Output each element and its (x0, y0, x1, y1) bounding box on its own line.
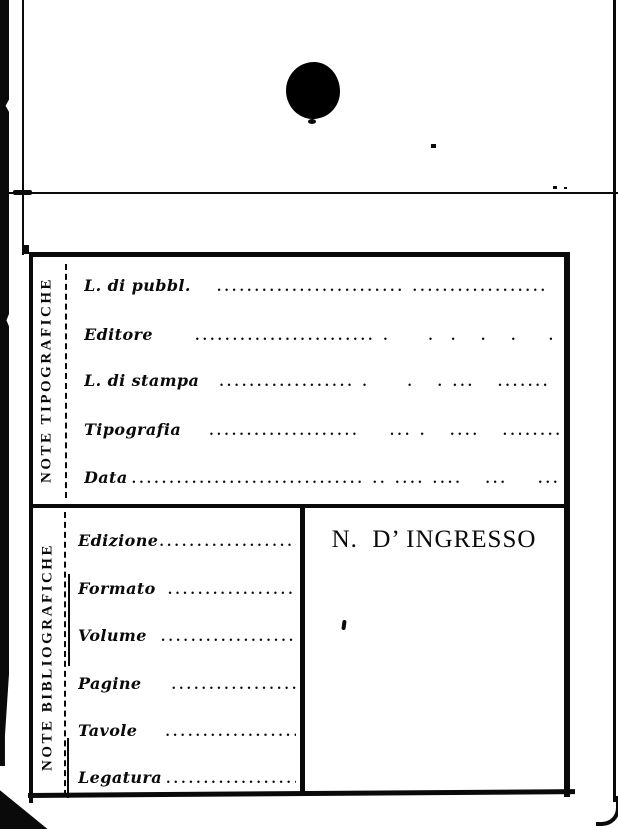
dotted-leader: ....................... (147, 630, 296, 645)
field-row-tavole: Tavole .................... (78, 721, 296, 743)
dotted-leader: .................... (141, 678, 296, 693)
scan-edge-line-right (613, 0, 616, 802)
scan-speck (431, 144, 436, 148)
scan-speck (553, 186, 557, 189)
dotted-leader: ........................ . . . . . . . .… (153, 329, 562, 344)
dotted-leader: ...................... (162, 772, 296, 787)
hole-punch-dot (286, 62, 340, 119)
scanned-catalog-card-page: NOTE TIPOGRAFICHE NOTE BIBLIOGRAFICHE L.… (0, 0, 618, 829)
field-row-luogo-pubblicazione: L. di pubbl. ......................... .… (84, 276, 562, 298)
field-label: L. di pubbl. (84, 276, 191, 295)
card-border-top (29, 252, 568, 257)
field-label: Volume (78, 626, 147, 645)
scan-speck (564, 187, 567, 189)
inner-line-segment (68, 574, 70, 666)
dotted-leader: ....................... (156, 583, 296, 598)
card-top-rule (0, 192, 618, 194)
dotted-leader: .................. . . . ... ....... . .… (199, 375, 562, 390)
field-row-pagine: Pagine .................... (78, 674, 296, 696)
field-label: Formato (78, 579, 156, 598)
dotted-leader: .................... ... . .... ........… (181, 424, 562, 439)
fold-line-vertical (22, 0, 24, 255)
field-label: Tavole (78, 721, 137, 740)
inner-dashed-line-bibliografiche (64, 512, 66, 796)
field-row-formato: Formato ....................... (78, 579, 296, 601)
card-border-right (564, 252, 570, 797)
dotted-leader: ............................... .. .... … (128, 472, 562, 487)
section-label-note-tipografiche: NOTE TIPOGRAFICHE (34, 264, 60, 496)
inner-line-segment (67, 738, 69, 798)
field-row-legatura: Legatura ...................... (78, 768, 296, 790)
card-border-left (29, 252, 33, 803)
dotted-leader: .................... (137, 725, 296, 740)
dotted-leader: ........................ (158, 535, 296, 550)
field-label: Editore (84, 325, 153, 344)
ingresso-divider-vertical (300, 508, 305, 796)
field-label: Pagine (78, 674, 141, 693)
field-row-edizione: Edizione ........................ (78, 531, 296, 553)
scan-edge-curve (596, 796, 618, 826)
field-row-editore: Editore ........................ . . . .… (84, 325, 562, 347)
scan-edge-strip-left (0, 0, 9, 766)
field-label: Legatura (78, 768, 162, 787)
field-label: L. di stampa (84, 371, 199, 390)
ink-mark (341, 620, 346, 630)
inner-dashed-line-tipografiche (65, 264, 67, 498)
field-row-data: Data ............................... .. … (84, 468, 562, 490)
ingresso-heading: N. D’ INGRESSO (306, 526, 562, 554)
field-row-tipografia: Tipografia .................... ... . ..… (84, 420, 562, 442)
field-label: Data (84, 468, 128, 487)
field-row-luogo-stampa: L. di stampa .................. . . . ..… (84, 371, 562, 393)
field-row-volume: Volume ....................... (78, 626, 296, 648)
field-label: Edizione (78, 531, 158, 550)
dotted-leader: ......................... ..............… (191, 280, 562, 295)
field-label: Tipografia (84, 420, 181, 439)
section-label-note-bibliografiche: NOTE BIBLIOGRAFICHE (34, 515, 62, 799)
scan-speck (308, 119, 316, 124)
rule-intersection-blob (13, 190, 32, 195)
